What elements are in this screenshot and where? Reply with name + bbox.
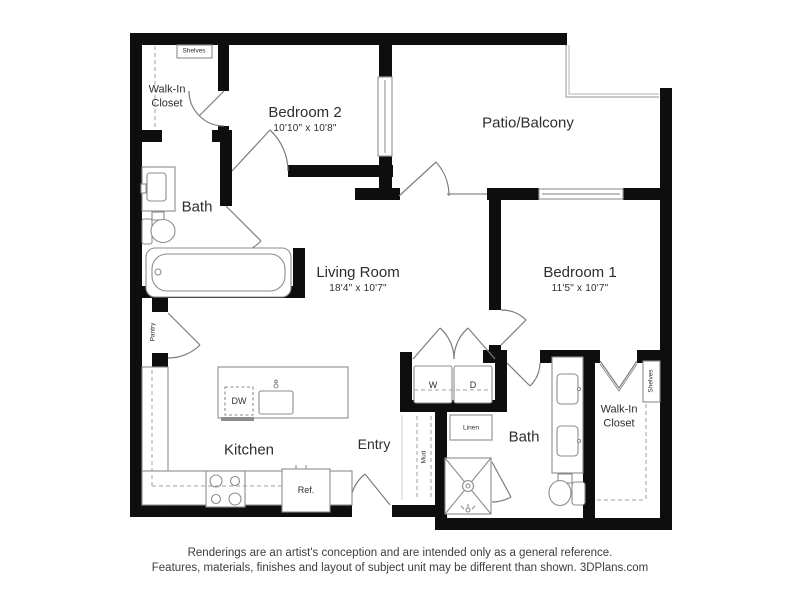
toilet-fixture-right bbox=[549, 481, 585, 506]
room-label-patio-balcony: Patio/Balcony bbox=[482, 115, 574, 132]
bedroom1-window bbox=[539, 189, 623, 199]
toilet-fixture-left bbox=[142, 219, 175, 244]
washer-label: W bbox=[429, 380, 438, 390]
floor-plan: Walk-In Closet Shelves Bedroom 2 10'10" … bbox=[0, 0, 800, 600]
windows-group bbox=[378, 77, 623, 199]
mud-label: Mud bbox=[421, 451, 428, 464]
shower-fixture bbox=[445, 458, 491, 514]
entry-door bbox=[350, 474, 390, 505]
refrigerator-label: Ref. bbox=[298, 485, 315, 495]
kitchen-island bbox=[218, 367, 348, 421]
footer-disclaimer-line1: Renderings are an artist's conception an… bbox=[0, 547, 800, 559]
vanity-sink-fixture-left bbox=[141, 167, 175, 220]
shower-door bbox=[492, 462, 511, 502]
stove-fixture bbox=[206, 471, 245, 507]
room-label-bath-left: Bath bbox=[182, 199, 213, 216]
vanity-sink-fixture-right bbox=[552, 357, 583, 483]
bathtub-fixture bbox=[146, 248, 291, 297]
bath-right-door bbox=[507, 363, 540, 386]
kitchen-sink-fixture bbox=[259, 391, 293, 414]
bedroom2-door bbox=[232, 130, 288, 171]
room-label-bath-right: Bath bbox=[509, 429, 540, 446]
room-label-walkin-closet-right: Walk-In Closet bbox=[587, 403, 651, 432]
footer-disclaimer-line2: Features, materials, finishes and layout… bbox=[0, 562, 800, 574]
closet-right-bifold-door bbox=[600, 361, 637, 391]
pantry-label: Pantry bbox=[150, 323, 157, 342]
room-label-kitchen: Kitchen bbox=[224, 442, 274, 459]
linen-label: Linen bbox=[463, 425, 479, 432]
floorplan-drawing bbox=[0, 0, 800, 600]
room-label-entry: Entry bbox=[358, 436, 391, 452]
dishwasher-label: DW bbox=[232, 396, 247, 406]
room-label-living-room: Living Room 18'4" x 10'7" bbox=[316, 264, 399, 294]
room-label-bedroom1: Bedroom 1 11'5" x 10'7" bbox=[543, 264, 616, 294]
shelves-label-right: Shelves bbox=[648, 369, 655, 392]
room-label-walkin-closet-left: Walk-In Closet bbox=[136, 83, 198, 112]
room-label-bedroom2: Bedroom 2 10'10" x 10'8" bbox=[268, 104, 341, 134]
patio-door bbox=[399, 162, 449, 196]
dryer-label: D bbox=[470, 380, 477, 390]
bedroom1-door bbox=[501, 310, 526, 345]
laundry-double-doors bbox=[413, 328, 495, 359]
shelves-label-left: Shelves bbox=[182, 48, 205, 55]
bedroom2-window bbox=[378, 77, 392, 156]
pantry-door bbox=[168, 313, 200, 358]
